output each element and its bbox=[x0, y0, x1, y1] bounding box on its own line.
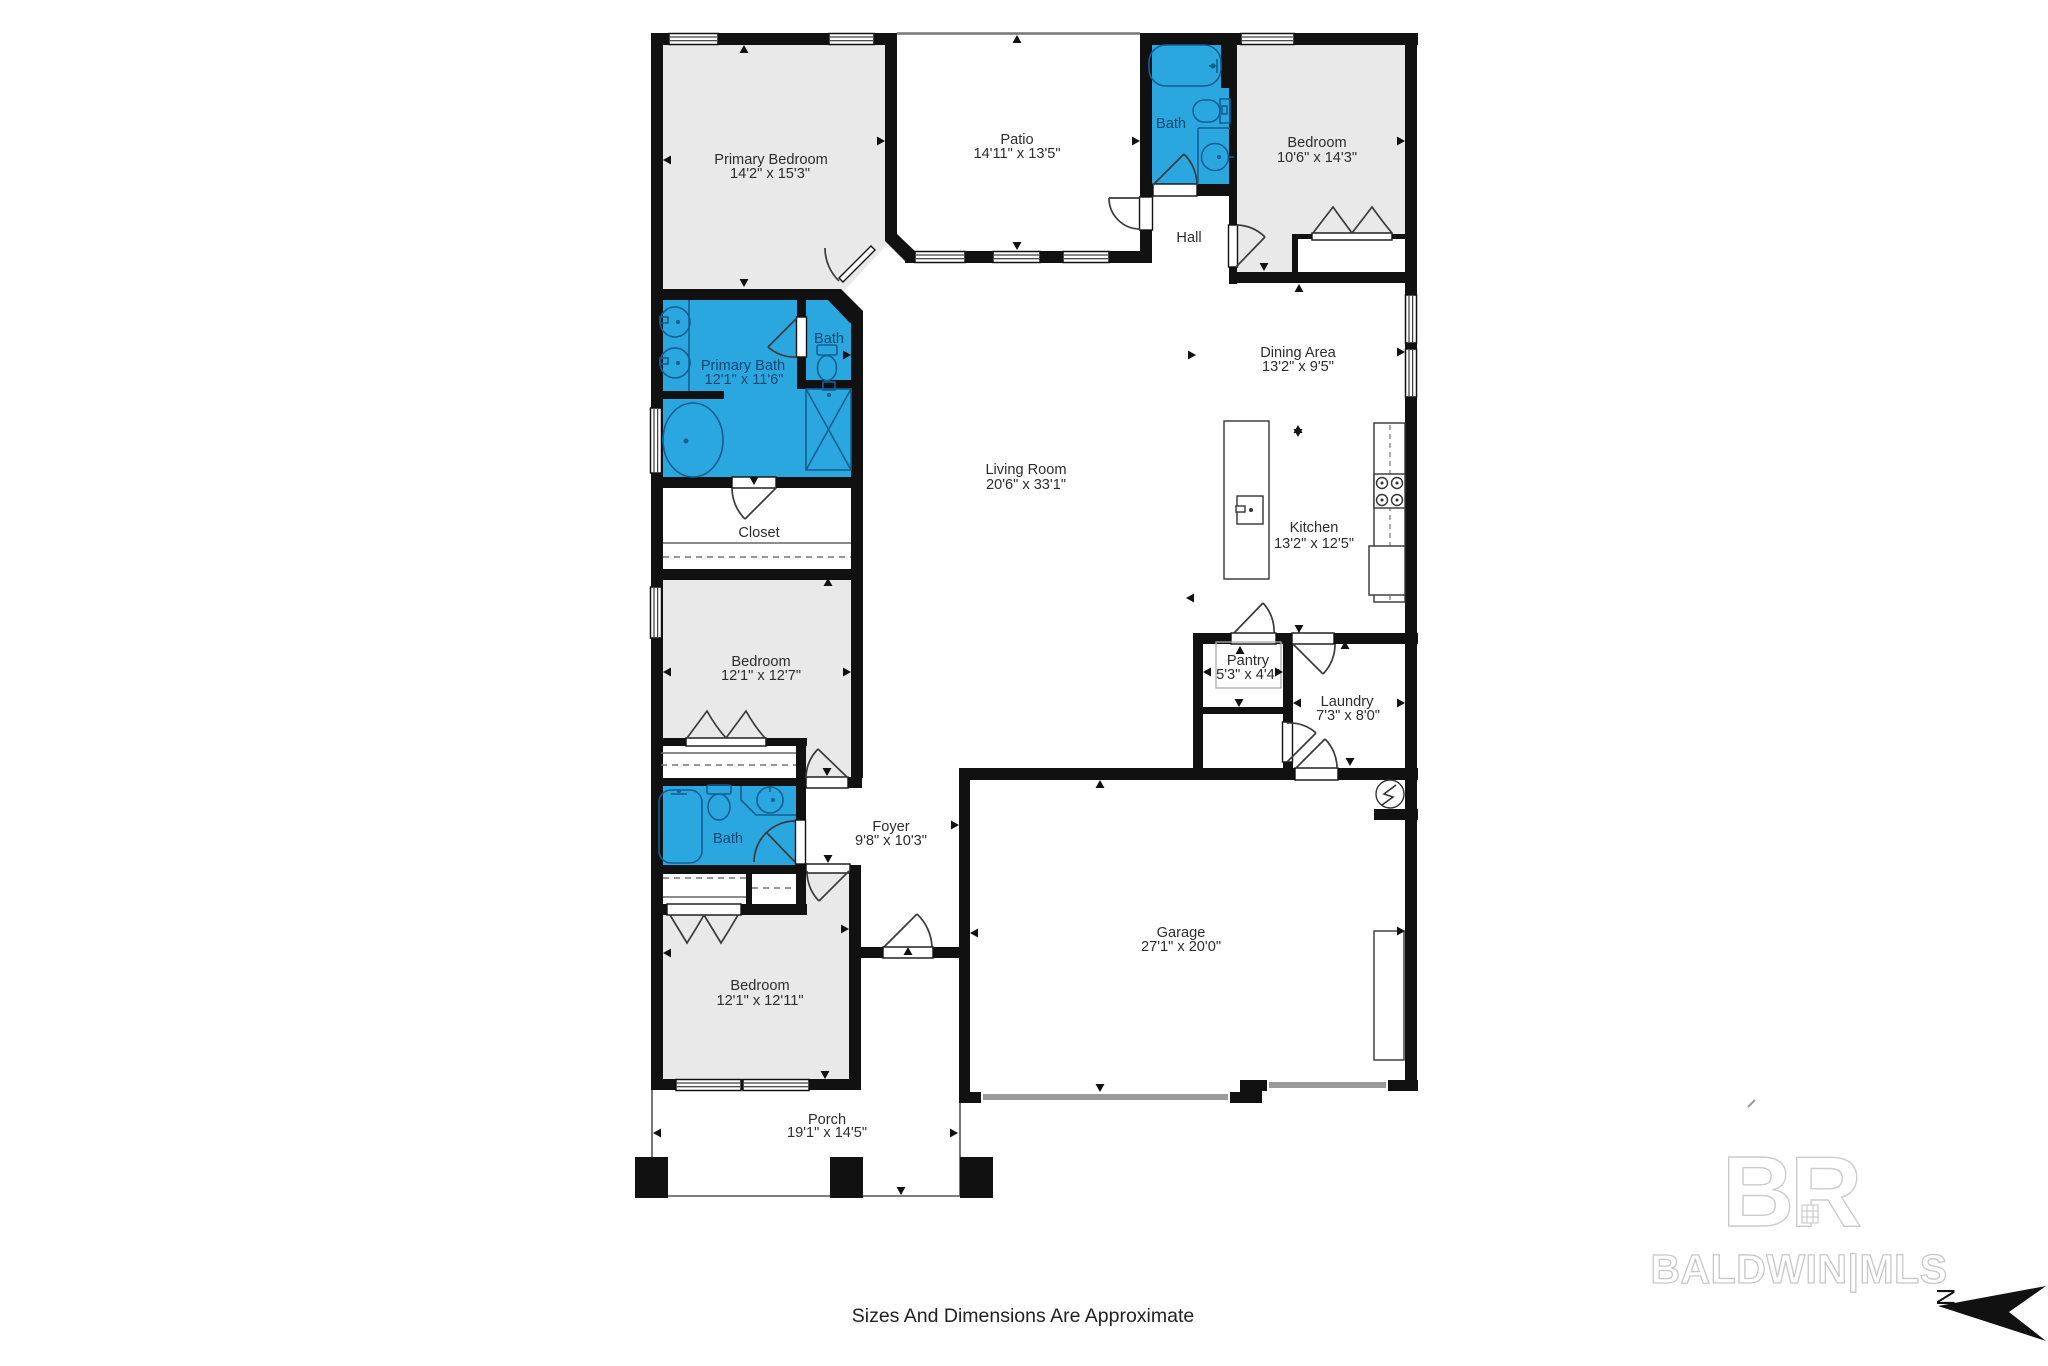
svg-text:9'8" x 10'3": 9'8" x 10'3" bbox=[855, 833, 927, 849]
svg-text:Kitchen: Kitchen bbox=[1290, 520, 1339, 536]
svg-text:Bedroom: Bedroom bbox=[1287, 135, 1346, 151]
svg-text:20'6" x 33'1": 20'6" x 33'1" bbox=[986, 477, 1066, 493]
svg-text:5'3" x 4'4": 5'3" x 4'4" bbox=[1216, 667, 1280, 683]
svg-text:10'6" x 14'3": 10'6" x 14'3" bbox=[1277, 150, 1357, 166]
svg-text:7'3" x 8'0": 7'3" x 8'0" bbox=[1316, 708, 1380, 724]
svg-text:Bedroom: Bedroom bbox=[730, 978, 789, 994]
svg-text:B: B bbox=[1722, 1136, 1794, 1248]
svg-text:13'2" x 9'5": 13'2" x 9'5" bbox=[1262, 359, 1334, 375]
svg-text:Sizes And Dimensions Are Appro: Sizes And Dimensions Are Approximate bbox=[852, 1305, 1195, 1327]
svg-text:Closet: Closet bbox=[738, 525, 779, 541]
svg-text:Hall: Hall bbox=[1176, 230, 1201, 246]
svg-text:12'1" x 12'7": 12'1" x 12'7" bbox=[721, 668, 801, 684]
svg-text:Bath: Bath bbox=[1156, 116, 1186, 132]
svg-text:BALDWIN|MLS: BALDWIN|MLS bbox=[1650, 1246, 1947, 1292]
svg-text:R: R bbox=[1790, 1136, 1862, 1248]
svg-text:12'1" x 12'11": 12'1" x 12'11" bbox=[716, 993, 803, 1009]
svg-text:Bath: Bath bbox=[814, 331, 844, 347]
svg-text:13'2" x 12'5": 13'2" x 12'5" bbox=[1274, 536, 1354, 552]
svg-text:12'1" x 11'6": 12'1" x 11'6" bbox=[705, 372, 784, 388]
svg-text:27'1" x 20'0": 27'1" x 20'0" bbox=[1141, 939, 1221, 955]
svg-text:Bath: Bath bbox=[713, 831, 743, 847]
svg-text:14'11" x 13'5": 14'11" x 13'5" bbox=[973, 146, 1060, 162]
svg-text:19'1" x 14'5": 19'1" x 14'5" bbox=[787, 1125, 867, 1141]
svg-text:N: N bbox=[1931, 1288, 1959, 1306]
svg-text:Living Room: Living Room bbox=[985, 462, 1066, 478]
svg-text:14'2" x 15'3": 14'2" x 15'3" bbox=[730, 166, 810, 182]
